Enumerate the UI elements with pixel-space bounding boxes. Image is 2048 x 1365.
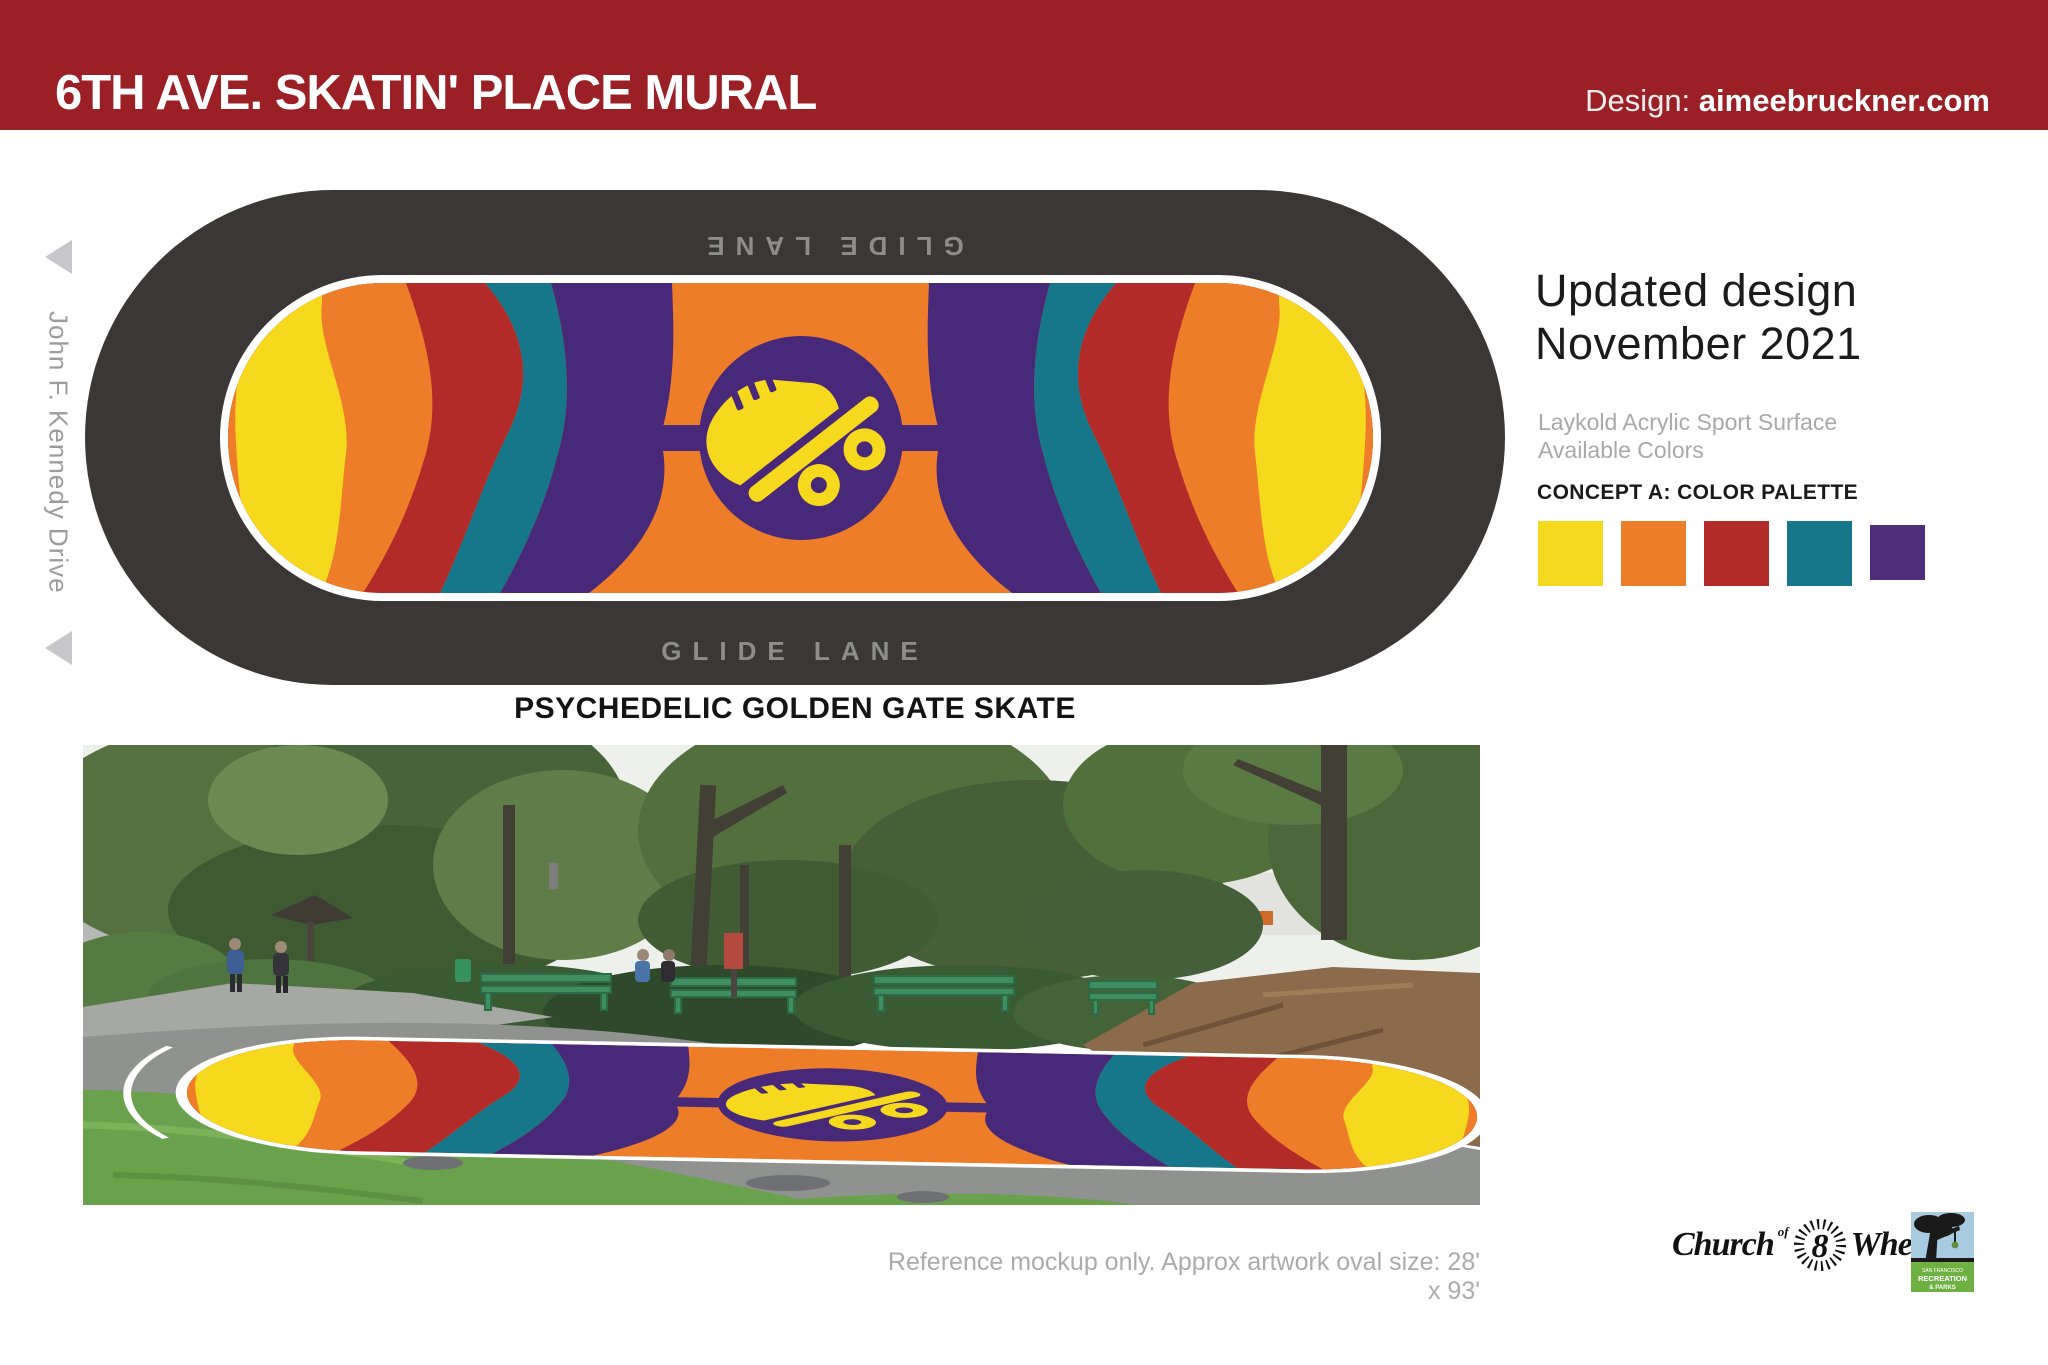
page-title: 6TH AVE. SKATIN' PLACE MURAL: [55, 69, 816, 118]
panel-heading-line2: November 2021: [1535, 317, 1862, 370]
church-of-8-wheels-logo: Church of 8 Wheels: [1672, 1218, 1947, 1272]
church-of-word: of: [1778, 1224, 1789, 1240]
sunburst-8-icon: 8: [1793, 1218, 1847, 1272]
palette-swatch: [1787, 521, 1852, 586]
svg-text:& PARKS: & PARKS: [1929, 1285, 1956, 1291]
street-label: John F. Kennedy Drive: [43, 311, 74, 594]
palette-swatch: [1621, 521, 1686, 586]
panel-heading: Updated design November 2021: [1535, 264, 1862, 370]
rink-inner-border: [220, 275, 1381, 601]
palette-swatch: [1704, 521, 1769, 586]
photo-caption: Reference mockup only. Approx artwork ov…: [880, 1248, 1480, 1306]
palette-label: CONCEPT A: COLOR PALETTE: [1537, 481, 1858, 505]
panel-heading-line1: Updated design: [1535, 264, 1862, 317]
arrow-left-icon: [45, 240, 72, 274]
design-caption: PSYCHEDELIC GOLDEN GATE SKATE: [85, 692, 1505, 726]
mural-design: [228, 283, 1373, 593]
church-word: Church: [1672, 1226, 1774, 1264]
panel-subtext-line2: Available Colors: [1538, 436, 1837, 464]
svg-text:RECREATION: RECREATION: [1918, 1274, 1967, 1283]
palette-swatch: [1538, 521, 1603, 586]
reference-photo: [83, 745, 1480, 1205]
swing-figure: [1952, 1242, 1959, 1249]
design-credit-label: Design:: [1585, 83, 1690, 118]
panel-subtext: Laykold Acrylic Sport Surface Available …: [1538, 408, 1837, 464]
design-credit: Design: aimeebruckner.com: [1585, 84, 1990, 118]
arrow-left-icon: [45, 631, 72, 665]
panel-subtext-line1: Laykold Acrylic Sport Surface: [1538, 408, 1837, 436]
design-credit-site[interactable]: aimeebruckner.com: [1699, 83, 1990, 118]
street-rail: John F. Kennedy Drive: [36, 240, 80, 665]
header-bar: 6TH AVE. SKATIN' PLACE MURAL Design: aim…: [0, 0, 2048, 130]
svg-text:8: 8: [1811, 1228, 1828, 1265]
palette-swatch: [1870, 525, 1925, 580]
glide-lane-label-bottom: GLIDE LANE: [85, 636, 1505, 667]
sf-rec-parks-logo: SAN FRANCISCO RECREATION & PARKS: [1911, 1212, 1974, 1292]
glide-lane-label-top: GLIDE LANE: [85, 230, 1575, 261]
palette-swatches: [1538, 521, 1925, 586]
rink-track: GLIDE LANE GLIDE LANE: [85, 190, 1505, 685]
